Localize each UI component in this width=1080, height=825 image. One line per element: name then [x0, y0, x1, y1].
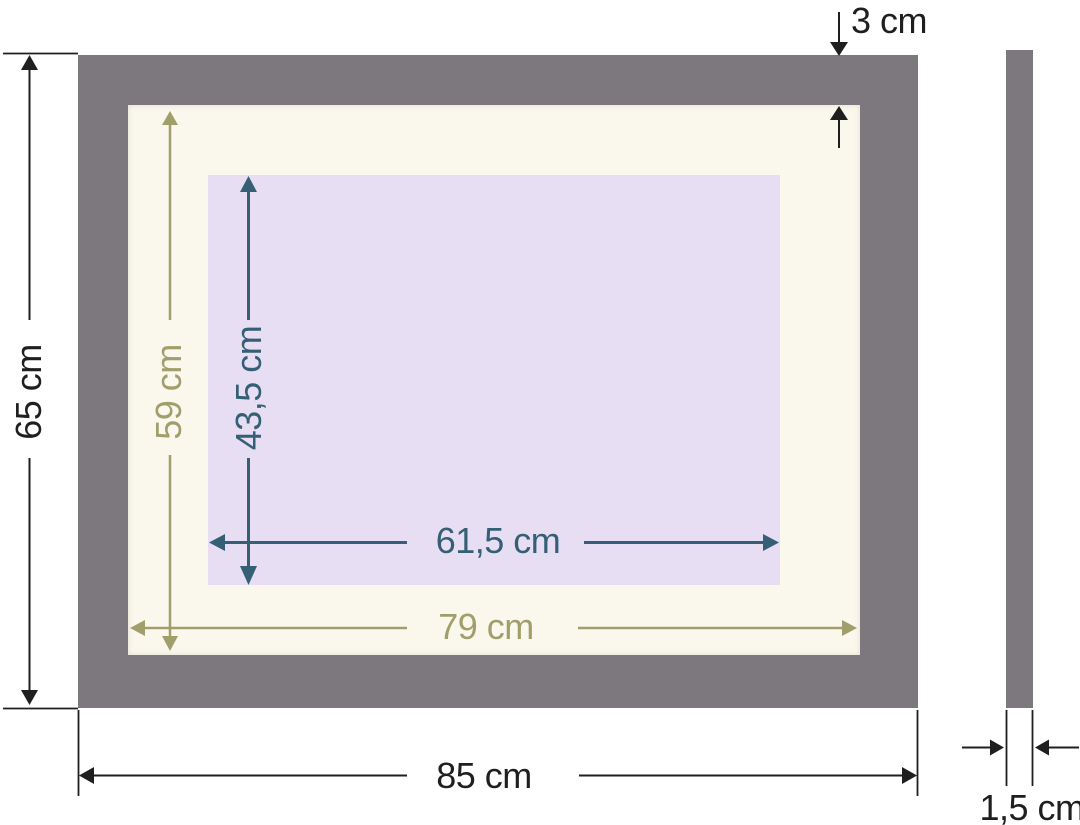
frame-side-profile [1006, 50, 1033, 708]
arrowhead-down-icon [21, 690, 38, 705]
dim-mat-height-label: 59 cm [149, 312, 189, 472]
dim-opening-height-label: 43,5 cm [229, 308, 269, 468]
dim-frame-face-label: 3 cm [851, 1, 1011, 41]
arrowhead-right-icon [902, 767, 917, 784]
dim-outer-width-label: 85 cm [404, 756, 564, 796]
dim-profile-depth-arrow [962, 710, 1079, 786]
arrowhead-up-icon [21, 55, 38, 70]
dim-outer-height-label: 65 cm [9, 312, 49, 472]
arrowhead-left-icon [79, 767, 94, 784]
dim-opening-width-label: 61,5 cm [418, 521, 578, 561]
arrowhead-right-icon [990, 740, 1004, 756]
arrowhead-left-icon [1035, 740, 1049, 756]
arrowhead-down-icon [830, 42, 848, 56]
dim-mat-width-label: 79 cm [406, 607, 566, 647]
frame-dimension-diagram: 65 cm 59 cm 43,5 cm 61,5 cm 79 cm 85 cm … [0, 0, 1080, 825]
dim-profile-depth-label: 1,5 cm [952, 788, 1080, 825]
